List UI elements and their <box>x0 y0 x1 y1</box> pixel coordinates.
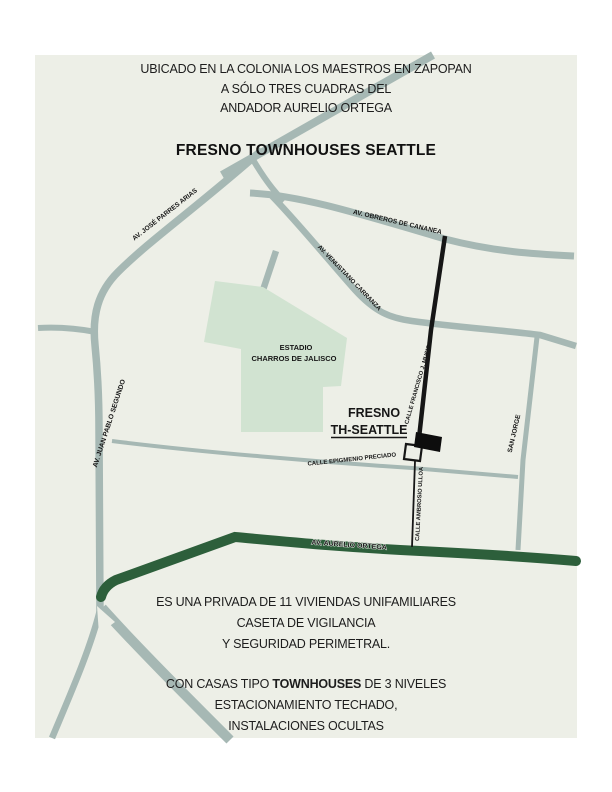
footer-line-5: ESTACIONAMIENTO TECHADO, <box>35 698 577 712</box>
footer-line-6: INSTALACIONES OCULTAS <box>35 719 577 733</box>
footer-line-2: CASETA DE VIGILANCIA <box>35 616 577 630</box>
flyer-page: AV. JOSÉ PARRES ARIAS AV. OBREROS DE CAN… <box>0 0 612 792</box>
footer-line-4-prefix: CON CASAS TIPO <box>166 677 273 691</box>
page-title: FRESNO TOWNHOUSES SEATTLE <box>35 142 577 160</box>
stadium-label-line1: ESTADIO <box>280 343 313 352</box>
footer-line-4-bold: TOWNHOUSES <box>272 677 361 691</box>
footer-line-3: Y SEGURIDAD PERIMETRAL. <box>35 637 577 651</box>
site-label-line2: TH-SEATTLE <box>331 423 408 437</box>
header-line-3: ANDADOR AURELIO ORTEGA <box>35 101 577 115</box>
footer-line-4-suffix: DE 3 NIVELES <box>361 677 446 691</box>
footer-line-4: CON CASAS TIPO TOWNHOUSES DE 3 NIVELES <box>35 677 577 691</box>
stadium-label-line2: CHARROS DE JALISCO <box>251 354 336 363</box>
footer-line-1: ES UNA PRIVADA DE 11 VIVIENDAS UNIFAMILI… <box>35 595 577 609</box>
site-label-line1: FRESNO <box>348 406 400 420</box>
header-line-2: A SÓLO TRES CUADRAS DEL <box>35 82 577 96</box>
header-line-1: UBICADO EN LA COLONIA LOS MAESTROS EN ZA… <box>35 62 577 76</box>
location-map: AV. JOSÉ PARRES ARIAS AV. OBREROS DE CAN… <box>0 0 612 792</box>
